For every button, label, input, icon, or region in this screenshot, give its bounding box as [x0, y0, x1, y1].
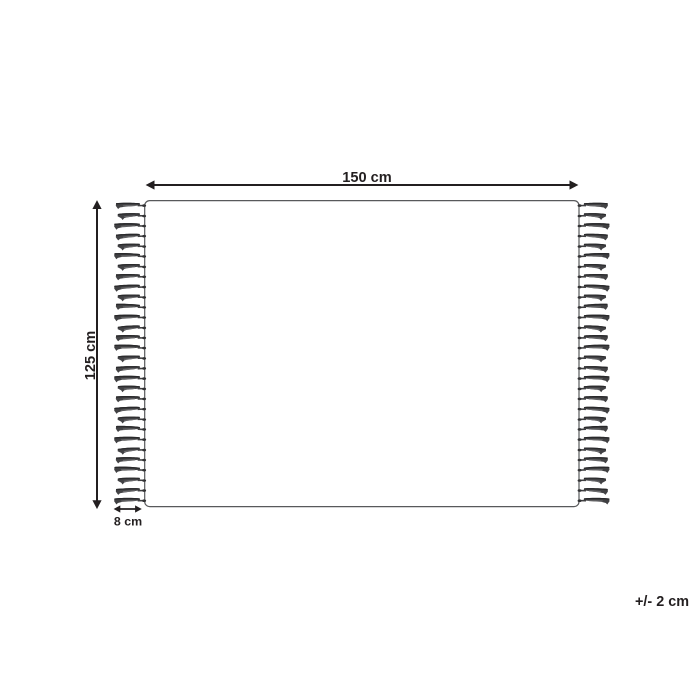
svg-text:125 cm: 125 cm [83, 331, 99, 381]
svg-text:+/- 2 cm: +/- 2 cm [635, 594, 689, 610]
svg-text:8 cm: 8 cm [114, 514, 142, 528]
svg-text:150 cm: 150 cm [342, 170, 392, 186]
